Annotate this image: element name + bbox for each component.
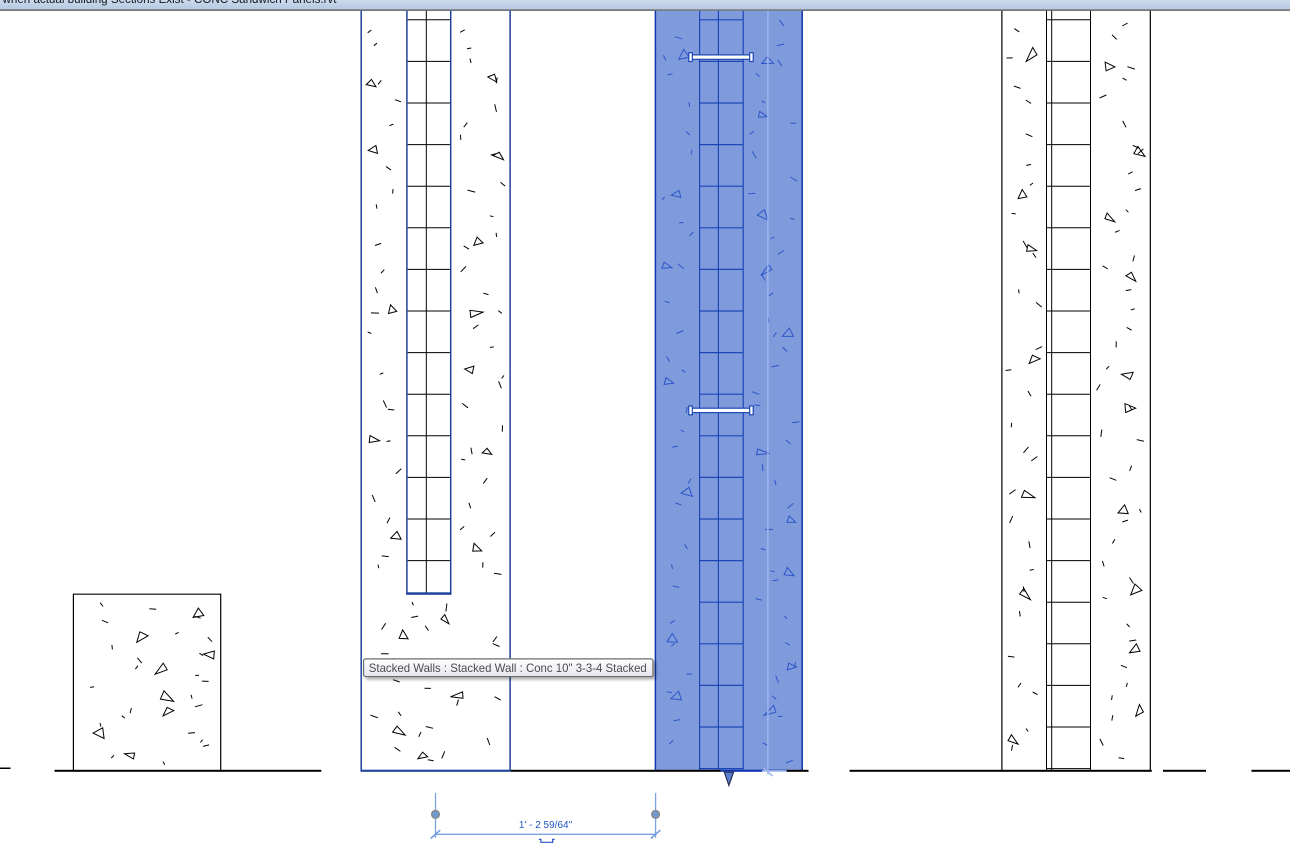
svg-text:Stacked Walls : Stacked Wall :: Stacked Walls : Stacked Wall : Conc 10" …: [369, 661, 647, 675]
svg-text:1' - 2 59/64": 1' - 2 59/64": [519, 820, 573, 831]
svg-text:when actual building Sections: when actual building Sections Exist - CO…: [2, 0, 338, 6]
